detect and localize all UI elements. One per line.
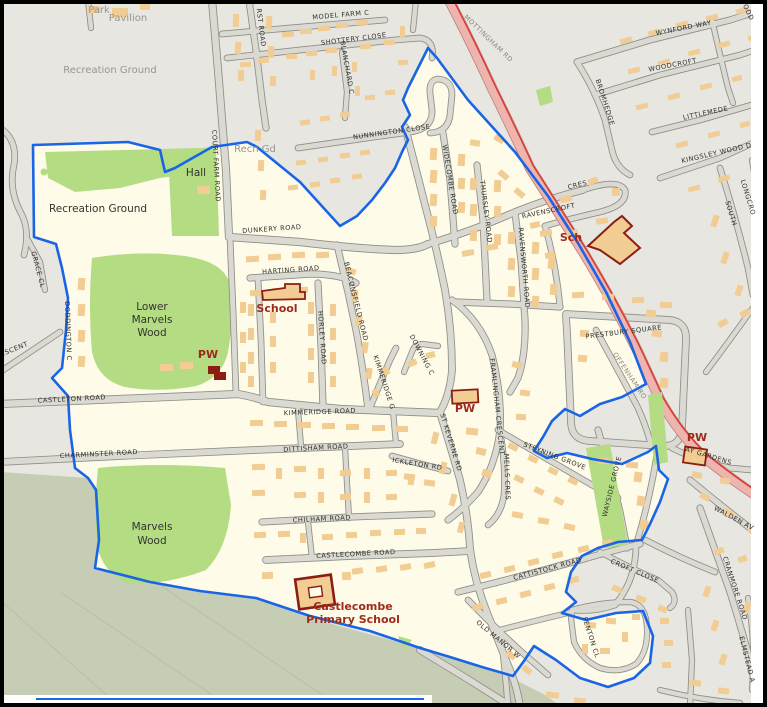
building xyxy=(316,252,329,259)
map-label-hall: Hall xyxy=(186,167,206,179)
building xyxy=(318,468,324,479)
building xyxy=(365,95,375,101)
castlecombe-school-courtyard xyxy=(308,586,322,598)
small-green xyxy=(41,169,48,176)
map-label-sch: Sch xyxy=(560,231,582,244)
building xyxy=(274,421,287,427)
building xyxy=(370,530,381,536)
building xyxy=(578,355,587,363)
building xyxy=(364,468,370,479)
building xyxy=(532,268,540,280)
map-label-wood: Wood xyxy=(137,327,166,339)
building xyxy=(494,180,502,192)
building xyxy=(233,14,240,27)
building xyxy=(582,644,588,654)
building xyxy=(270,76,277,86)
road xyxy=(393,411,396,444)
building xyxy=(572,292,584,299)
building xyxy=(346,532,357,538)
building xyxy=(268,46,275,58)
map-label-pw: PW xyxy=(455,402,475,415)
building xyxy=(268,254,281,261)
building xyxy=(298,422,311,428)
building xyxy=(300,29,312,35)
building xyxy=(548,258,556,270)
building xyxy=(160,364,173,371)
building xyxy=(398,60,408,66)
building xyxy=(258,160,265,171)
building xyxy=(246,256,259,263)
building xyxy=(254,532,266,538)
map-label-primary-school: Primary School xyxy=(306,613,400,626)
building xyxy=(622,632,628,642)
map-label-lower: Lower xyxy=(136,301,168,313)
building xyxy=(260,190,267,200)
building xyxy=(292,252,305,259)
building xyxy=(326,48,337,54)
building xyxy=(430,148,438,160)
building xyxy=(385,90,395,96)
building xyxy=(248,304,254,316)
building xyxy=(470,230,478,241)
building xyxy=(636,495,645,506)
building xyxy=(248,328,254,340)
building xyxy=(632,614,640,620)
building xyxy=(180,362,193,369)
building xyxy=(660,618,669,624)
building xyxy=(340,494,351,500)
building xyxy=(330,328,336,340)
building xyxy=(394,529,405,535)
building xyxy=(78,278,86,290)
map-label-pw: PW xyxy=(687,431,707,444)
building xyxy=(384,40,395,46)
hall-green xyxy=(168,147,219,236)
building xyxy=(294,466,306,472)
map-label-recreation-ground: Recreation Ground xyxy=(63,65,156,76)
building xyxy=(356,20,368,26)
map-label-marvels: Marvels xyxy=(132,521,173,533)
building xyxy=(197,186,210,194)
building xyxy=(282,32,294,38)
building xyxy=(250,290,262,296)
building xyxy=(330,304,336,316)
building xyxy=(550,284,558,296)
building xyxy=(532,296,540,307)
building xyxy=(308,302,314,314)
map-label-mells-cres: MELLS CRES xyxy=(502,454,512,501)
building xyxy=(286,54,297,60)
map-label-wood: Wood xyxy=(137,535,166,547)
building xyxy=(600,648,610,654)
road xyxy=(413,4,416,30)
building xyxy=(332,66,338,76)
screenshot-frame: ParkPavilionRecreation GroundRecn GdRecr… xyxy=(0,0,767,707)
building xyxy=(322,423,335,429)
building xyxy=(612,188,620,196)
building xyxy=(252,490,265,496)
building xyxy=(632,297,644,303)
building xyxy=(78,304,86,316)
building xyxy=(342,572,352,581)
building xyxy=(270,336,276,347)
building xyxy=(140,4,150,10)
map-label-school: School xyxy=(256,302,297,315)
building xyxy=(659,378,668,389)
building xyxy=(364,492,370,503)
building xyxy=(78,356,86,367)
building xyxy=(352,62,358,72)
map-label-park: Park xyxy=(88,5,110,16)
building xyxy=(310,70,316,80)
building xyxy=(240,62,251,68)
map-canvas[interactable]: ParkPavilionRecreation GroundRecn GdRecr… xyxy=(4,4,763,703)
building xyxy=(633,471,642,482)
building xyxy=(494,206,502,217)
building xyxy=(458,154,466,166)
building xyxy=(646,309,657,317)
building xyxy=(416,528,426,534)
building xyxy=(308,372,314,383)
building xyxy=(372,425,385,431)
building xyxy=(266,16,273,29)
building xyxy=(318,492,324,503)
building xyxy=(400,26,405,38)
building xyxy=(255,130,262,141)
building xyxy=(252,464,265,470)
building xyxy=(516,414,526,421)
map-label-castlecombe: Castlecombe xyxy=(313,600,392,613)
building xyxy=(330,376,336,387)
building xyxy=(270,362,276,373)
building xyxy=(235,42,242,54)
building xyxy=(308,324,314,336)
building xyxy=(664,640,673,646)
building xyxy=(262,572,273,579)
building xyxy=(238,70,245,81)
building xyxy=(386,494,397,500)
building xyxy=(660,302,672,309)
building xyxy=(508,258,516,270)
building xyxy=(340,470,351,476)
building xyxy=(306,51,317,57)
map-viewport[interactable]: ParkPavilionRecreation GroundRecn GdRecr… xyxy=(4,4,763,703)
building xyxy=(322,534,333,540)
building xyxy=(659,352,668,363)
building xyxy=(458,178,466,189)
map-edge-gutter xyxy=(751,4,763,703)
building xyxy=(240,332,246,343)
map-label-recn-gd: Recn Gd xyxy=(234,144,276,155)
building xyxy=(78,330,86,342)
building xyxy=(300,533,306,543)
building xyxy=(360,44,371,50)
building xyxy=(396,426,408,432)
building xyxy=(308,348,314,360)
building xyxy=(508,286,516,297)
building xyxy=(250,420,263,426)
building xyxy=(466,427,479,435)
map-label-marvels: Marvels xyxy=(132,314,173,326)
map-label-pw: PW xyxy=(198,348,218,361)
building xyxy=(346,424,359,430)
building xyxy=(278,531,290,537)
building xyxy=(248,352,254,364)
building xyxy=(240,362,246,373)
building xyxy=(318,26,330,32)
building xyxy=(430,170,438,183)
map-label-recreation-ground: Recreation Ground xyxy=(49,203,147,215)
building xyxy=(430,216,438,227)
building xyxy=(276,468,282,479)
building xyxy=(430,194,438,206)
building xyxy=(336,23,348,29)
building xyxy=(258,58,269,64)
building xyxy=(606,618,616,625)
building xyxy=(248,376,254,387)
building xyxy=(470,178,478,190)
building xyxy=(330,352,336,364)
building xyxy=(386,470,397,476)
map-label-pavilion: Pavilion xyxy=(109,13,147,24)
building xyxy=(508,232,516,244)
building xyxy=(240,302,246,313)
building xyxy=(662,662,671,668)
building xyxy=(470,204,478,216)
building xyxy=(294,492,306,498)
building xyxy=(532,242,540,254)
